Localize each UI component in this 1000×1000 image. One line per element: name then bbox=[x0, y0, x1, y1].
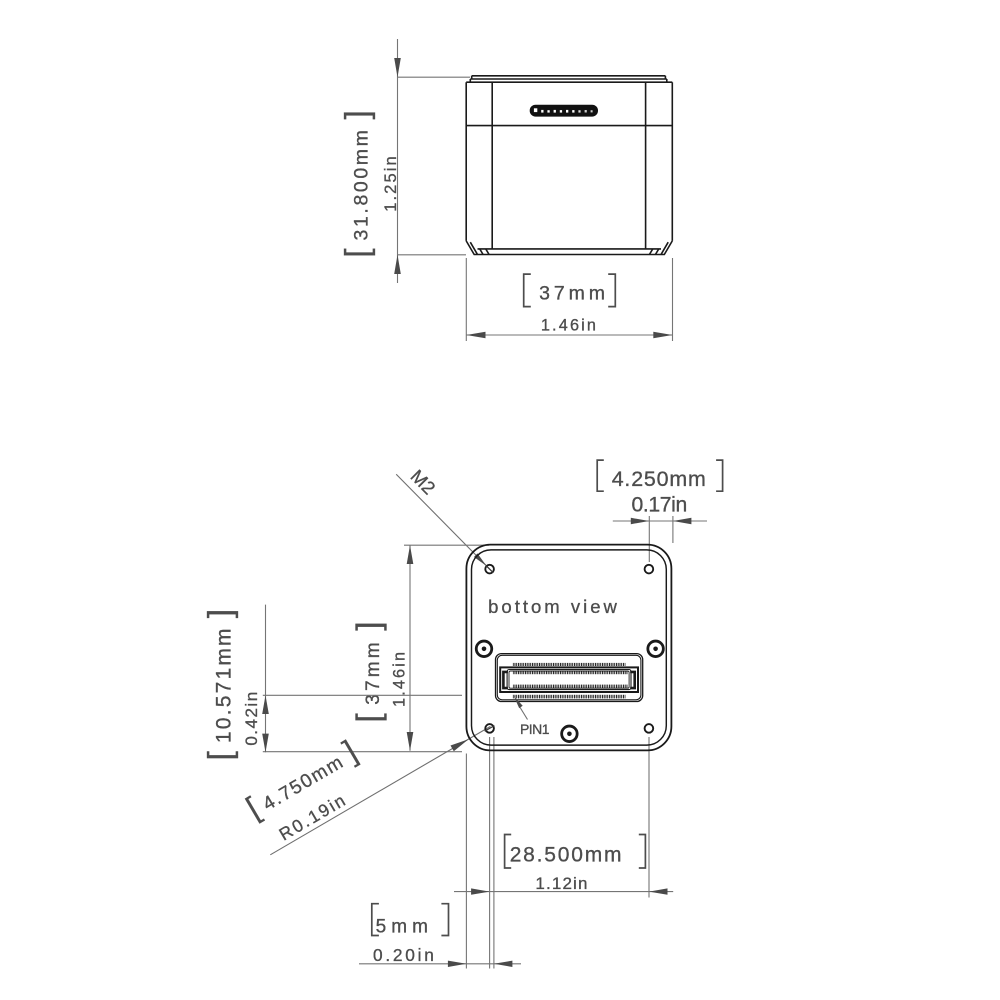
svg-text:1.46in: 1.46in bbox=[391, 650, 409, 707]
svg-text:37mm: 37mm bbox=[539, 283, 609, 305]
svg-text:5mm: 5mm bbox=[376, 916, 433, 937]
svg-text:PIN1: PIN1 bbox=[520, 721, 550, 737]
svg-text:M2: M2 bbox=[407, 465, 440, 498]
svg-text:1.46in: 1.46in bbox=[541, 317, 598, 335]
svg-text:4.250mm: 4.250mm bbox=[612, 467, 707, 491]
svg-text:0.42in: 0.42in bbox=[242, 690, 261, 745]
svg-text:[ 10.571mm ]: [ 10.571mm ] bbox=[202, 609, 239, 761]
svg-text:[ 31.800mm ]: [ 31.800mm ] bbox=[339, 110, 376, 258]
svg-text:1.12in: 1.12in bbox=[535, 874, 588, 893]
svg-text:0.17in: 0.17in bbox=[631, 494, 686, 517]
svg-text:0.20in: 0.20in bbox=[373, 945, 437, 965]
svg-text:1.25in: 1.25in bbox=[382, 154, 400, 212]
svg-text:bottom view: bottom view bbox=[488, 596, 620, 617]
svg-text:28.500mm: 28.500mm bbox=[510, 844, 624, 867]
svg-text:[ 37mm ]: [ 37mm ] bbox=[351, 621, 388, 722]
